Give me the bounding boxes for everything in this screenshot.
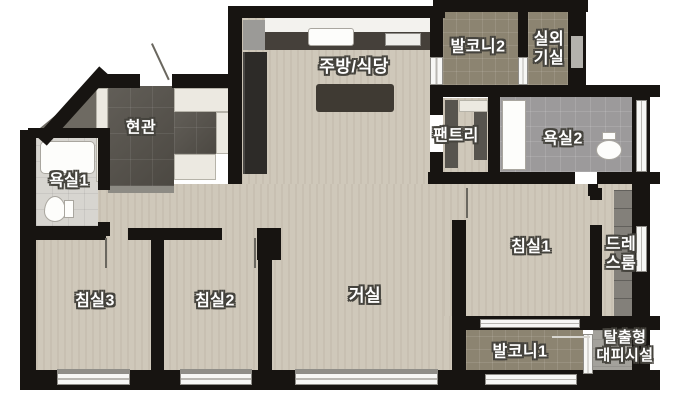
window-dressroom-right: [636, 226, 647, 272]
label-escape: 탈출형 대피시설: [596, 329, 653, 365]
wall-bath1-right-a: [98, 128, 110, 190]
window-balcony1: [485, 374, 577, 385]
cooktop: [385, 33, 421, 46]
toilet2-icon: [596, 140, 622, 160]
label-bedroom2: 침실2: [195, 291, 235, 310]
pantry-cabinet-top: [459, 100, 488, 112]
kitchen-island: [316, 84, 394, 112]
bedroom3-door-leaf: [105, 238, 107, 268]
wall-bath2-bottom-a: [428, 172, 575, 184]
wall-bath2-bottom-b: [597, 172, 660, 184]
wall-bedrooms-top-b: [128, 228, 222, 240]
label-bathroom2: 욕실2: [543, 129, 583, 148]
wall-living-b2: [258, 260, 272, 370]
window-bath2-right: [636, 100, 647, 172]
escape-door: [583, 334, 593, 374]
entrance-closet-bottom: [174, 154, 216, 180]
living-hall-floor: [36, 184, 460, 370]
wall-top-balcony2: [433, 0, 588, 12]
wall-bath1-bottom: [28, 226, 108, 236]
fridge-cabinet: [243, 52, 267, 174]
wall-bedroom2-jamb: [257, 228, 281, 260]
wall-pantry-bath2: [488, 90, 500, 184]
wall-rightwing-top: [430, 85, 660, 97]
label-balcony2: 발코니2: [450, 37, 505, 56]
entrance-closet-top: [174, 88, 230, 112]
label-dressroom: 드레 스룸: [606, 235, 636, 273]
label-bathroom1: 욕실1: [49, 171, 89, 190]
floor-plan: 현관 주방/식당 발코니2 실외 기실 팬트리 욕실2 욕실1 침실1 드레 스…: [0, 0, 676, 402]
label-pantry: 팬트리: [433, 126, 479, 145]
wall-top-kitchen: [228, 6, 445, 18]
label-entrance: 현관: [126, 118, 156, 137]
wall-balc2-outdoor: [518, 12, 528, 57]
label-escape-line2: 대피시설: [596, 347, 653, 364]
label-dress-line1: 드레: [606, 236, 636, 253]
label-outdoor-unit: 실외 기실: [534, 30, 564, 68]
wall-entrance-top-right: [172, 74, 232, 88]
utility-niche: [243, 20, 267, 50]
wall-bath1-top: [28, 128, 108, 138]
wall-kitchen-right-b: [430, 85, 443, 115]
label-living: 거실: [349, 286, 381, 306]
wall-left: [20, 130, 36, 382]
window-bedroom1-balcony: [480, 319, 580, 328]
outdoor-unit-vent: [571, 36, 583, 68]
kitchen-sink: [308, 28, 354, 46]
label-bedroom3: 침실3: [75, 291, 115, 310]
toilet1-tank: [64, 200, 74, 218]
bedroom2-door-leaf: [254, 238, 256, 268]
wall-b3-b2-divider: [151, 228, 164, 370]
label-outdoor-line1: 실외: [534, 31, 564, 48]
window-living: [295, 373, 438, 385]
wall-dress-left: [590, 225, 602, 318]
wall-kitchen-right-a: [430, 12, 443, 57]
label-kitchen-dining: 주방/식당: [319, 57, 389, 77]
toilet2-tank: [602, 132, 616, 140]
label-balcony1: 발코니1: [492, 342, 547, 361]
toilet1-icon: [44, 196, 66, 222]
wall-bedroom1-left: [452, 220, 466, 390]
wall-dress-jamb: [590, 188, 602, 200]
window-bedroom2: [180, 373, 252, 385]
label-escape-line1: 탈출형: [604, 329, 647, 346]
entrance-step: [108, 186, 174, 193]
window-bedroom3: [57, 373, 130, 385]
entrance-door-leaf: [151, 43, 170, 80]
escape-hatch-line: [552, 336, 590, 338]
entrance-floor-ext: [174, 112, 216, 154]
balc2-outdoor-door: [518, 57, 528, 85]
bedroom1-door-leaf: [466, 188, 468, 218]
shower: [502, 100, 526, 170]
bathtub: [40, 141, 95, 174]
label-outdoor-line2: 기실: [534, 50, 564, 67]
label-bedroom1: 침실1: [511, 237, 551, 256]
wall-kitchen-left: [228, 6, 242, 184]
label-dress-line2: 스룸: [606, 255, 636, 272]
balcony2-door: [430, 57, 443, 85]
